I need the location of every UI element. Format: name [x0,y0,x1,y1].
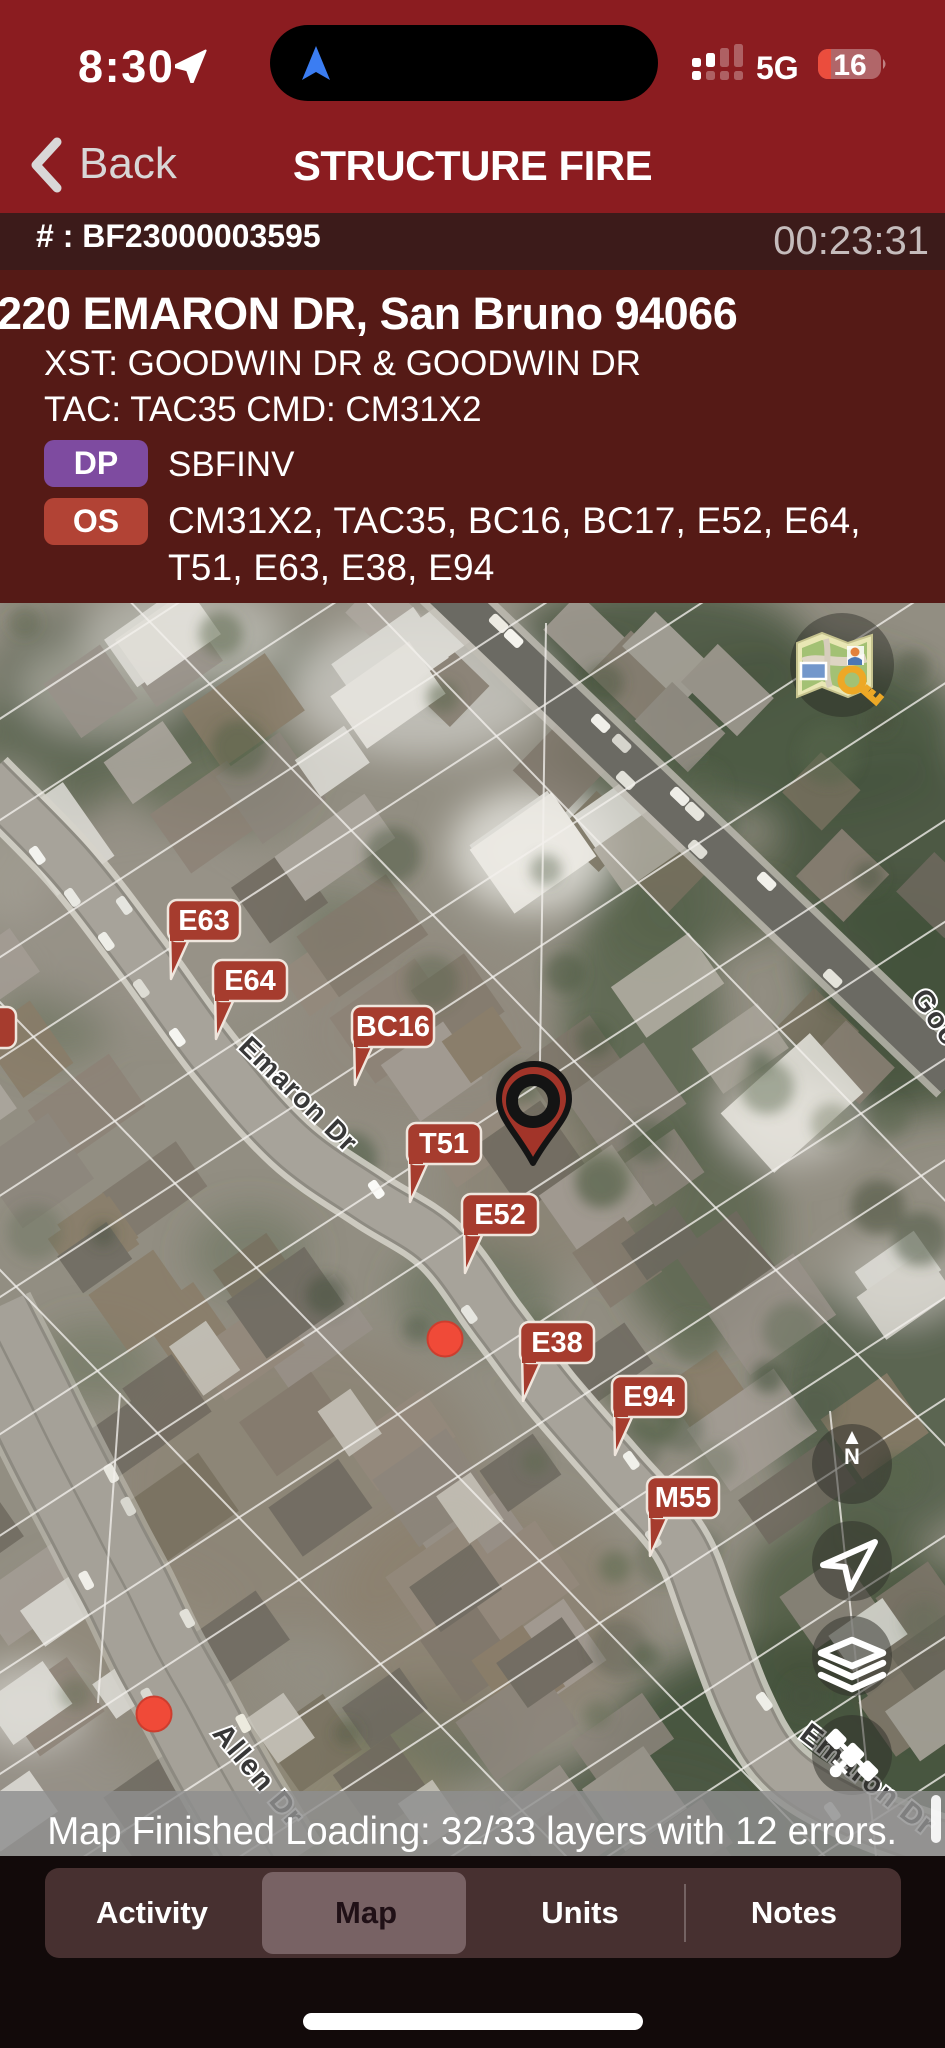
svg-text:E64: E64 [224,965,276,997]
svg-text:16: 16 [833,49,866,80]
svg-text:E94: E94 [623,1381,675,1413]
svg-text:N: N [844,1444,860,1469]
svg-text:E63: E63 [178,905,230,937]
svg-text:M55: M55 [655,1482,711,1514]
svg-text:E52: E52 [474,1199,526,1231]
svg-text:T51: T51 [419,1128,469,1160]
svg-text:BC16: BC16 [356,1011,430,1043]
svg-text:E38: E38 [531,1327,583,1359]
svg-text:Map Finished Loading: 32/33 la: Map Finished Loading: 32/33 layers with … [47,1810,897,1853]
